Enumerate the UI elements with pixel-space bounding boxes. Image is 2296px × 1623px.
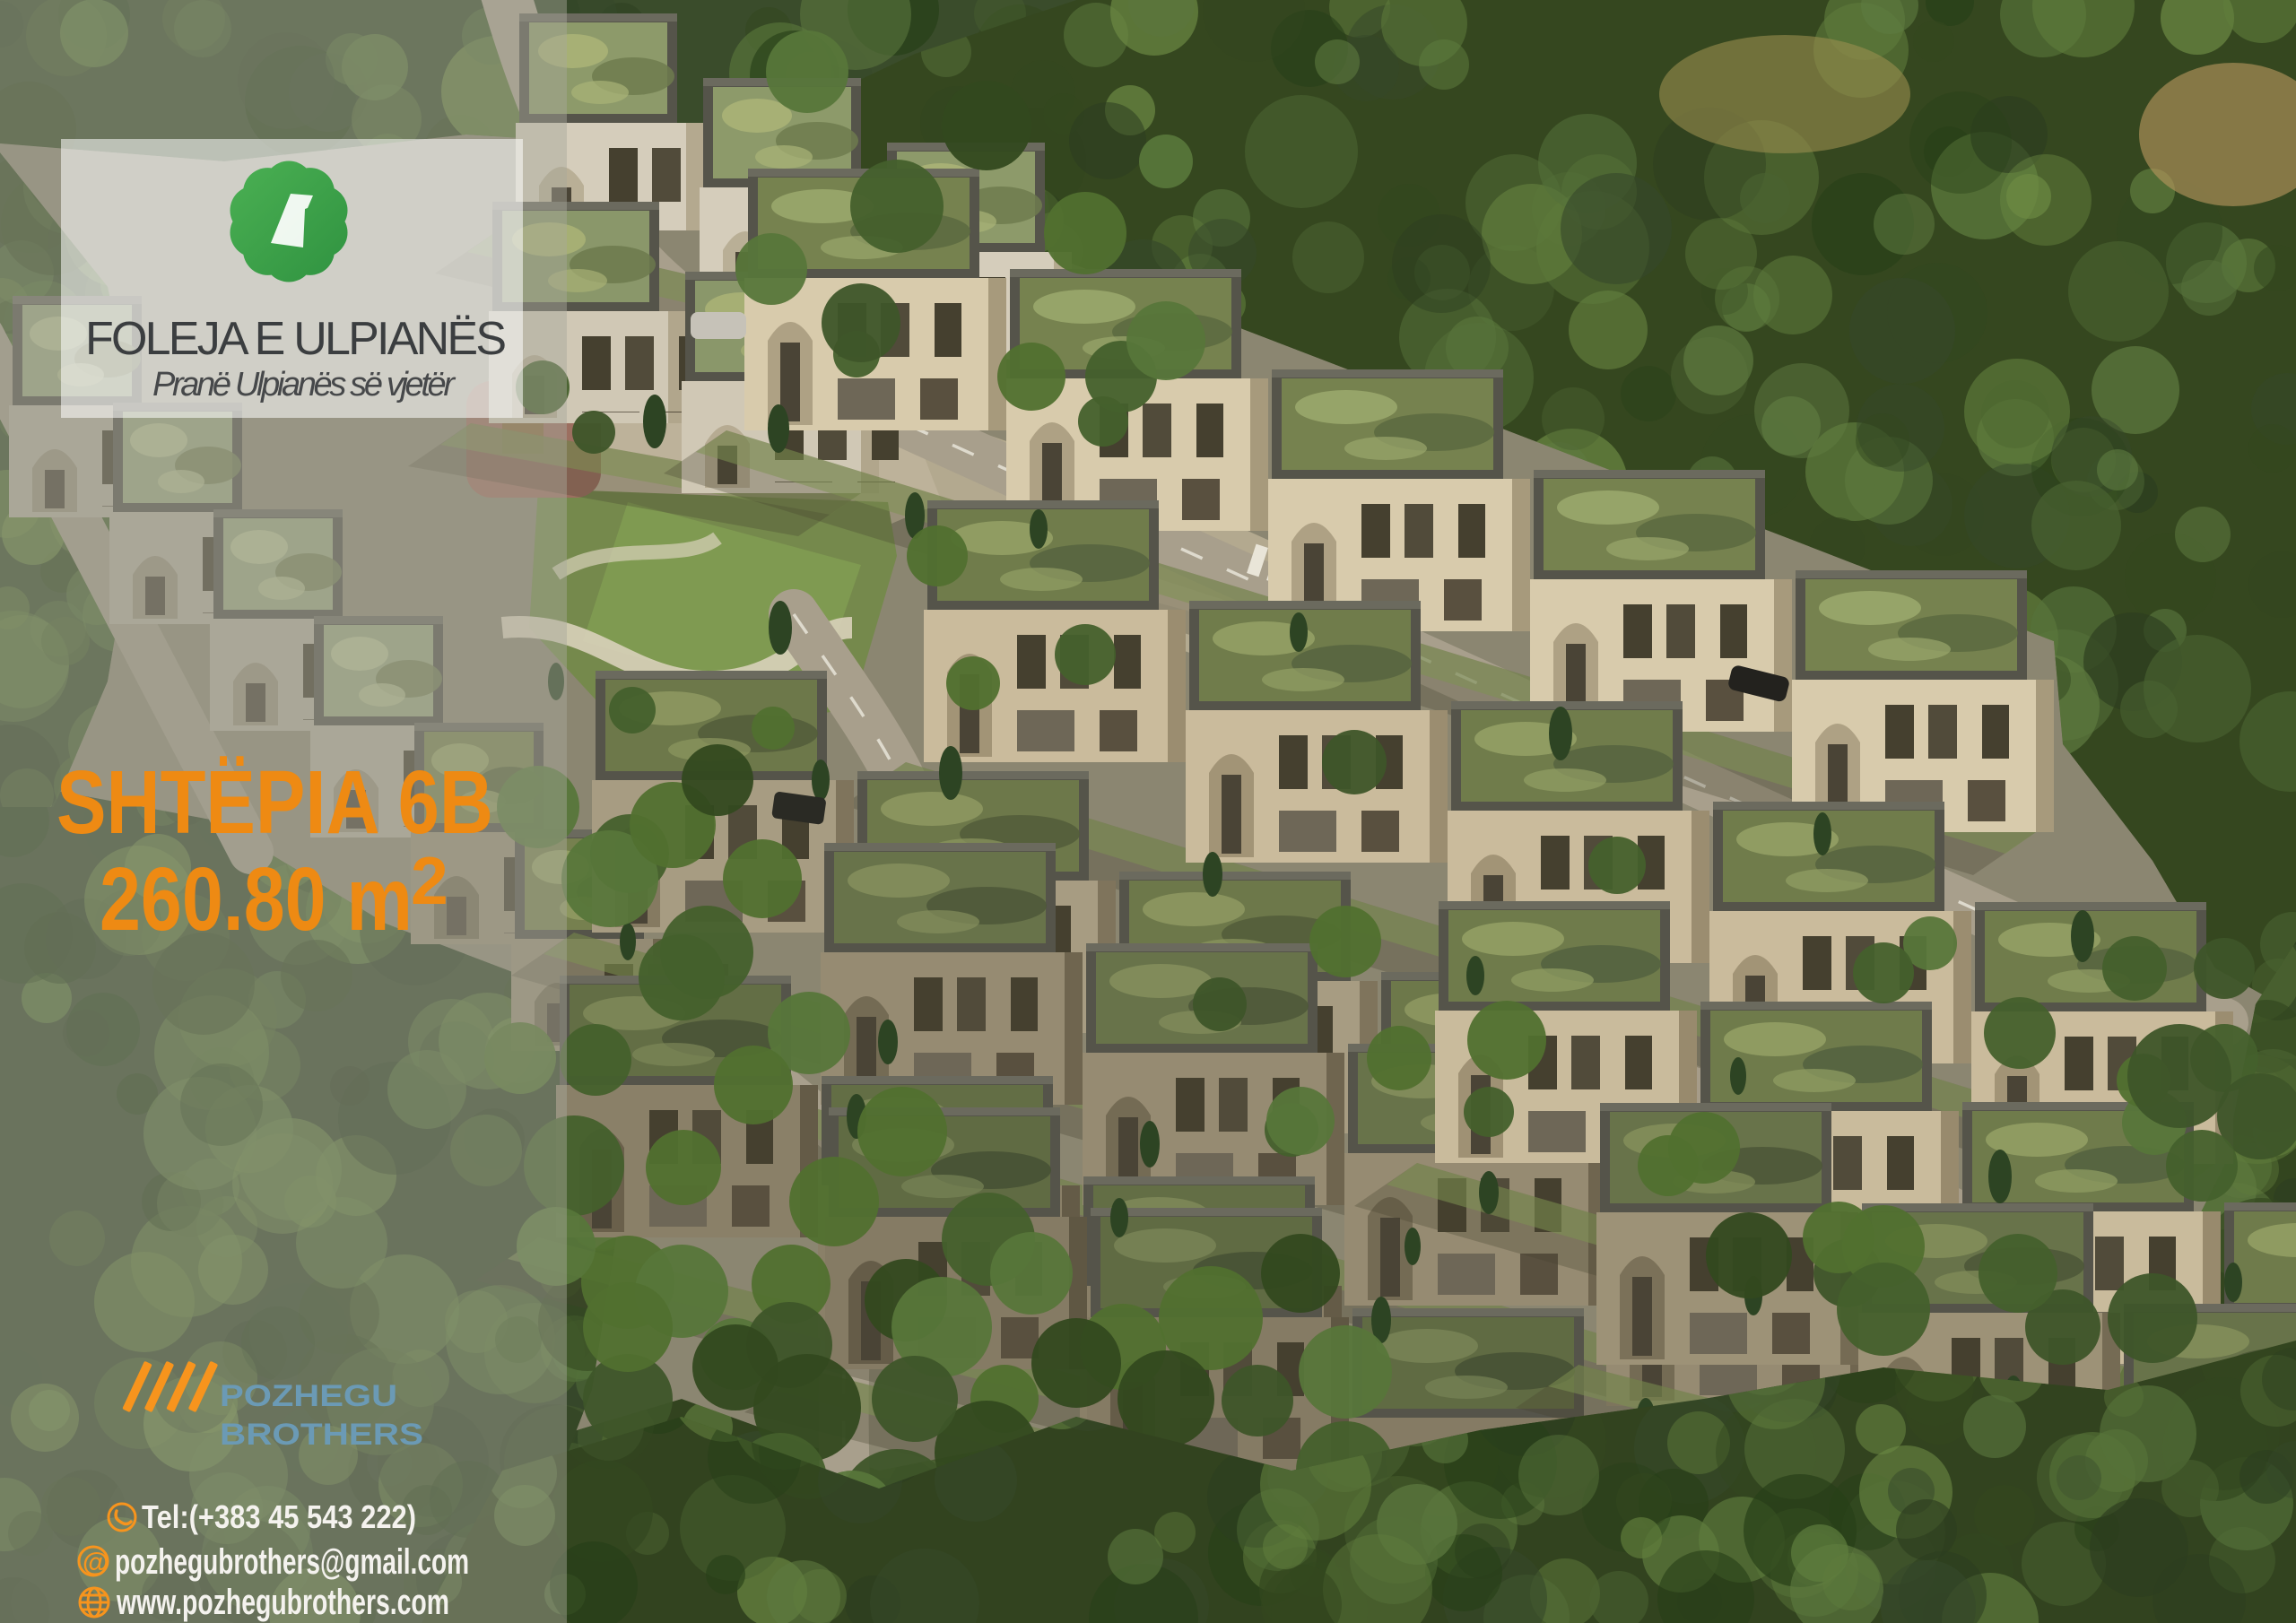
svg-text:2: 2 (411, 843, 448, 918)
svg-text:BROTHERS: BROTHERS (220, 1418, 423, 1452)
svg-text:www.pozhegubrothers.com: www.pozhegubrothers.com (116, 1583, 449, 1622)
svg-text:Pranë Ulpianës së vjetër: Pranë Ulpianës së vjetër (152, 366, 456, 404)
svg-text:FOLEJA E ULPIANËS: FOLEJA E ULPIANËS (85, 313, 507, 365)
svg-text:@: @ (83, 1548, 109, 1577)
svg-text:POZHEGU: POZHEGU (220, 1379, 397, 1413)
svg-text:pozhegubrothers@gmail.com: pozhegubrothers@gmail.com (115, 1542, 469, 1582)
svg-text:Tel:(+383 45 543 222): Tel:(+383 45 543 222) (142, 1498, 416, 1535)
svg-text:260.80 m: 260.80 m (100, 849, 413, 950)
svg-text:SHTËPIA 6B: SHTËPIA 6B (57, 752, 493, 853)
